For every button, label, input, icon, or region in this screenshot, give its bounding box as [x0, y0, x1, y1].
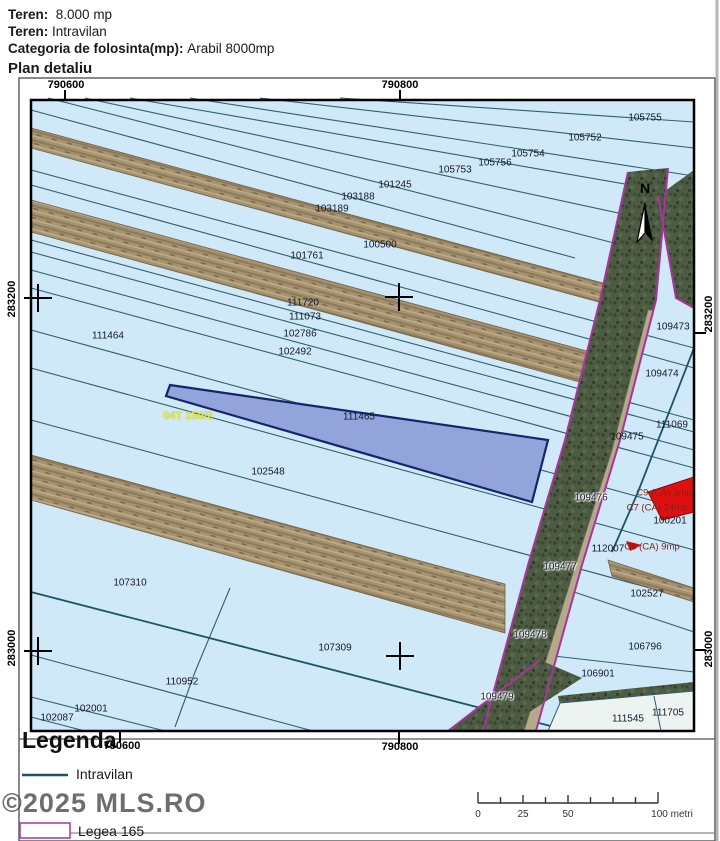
legea165-rect-symbol	[20, 823, 70, 838]
scale-label-25: 25	[517, 809, 528, 820]
scale-label-50: 50	[562, 809, 573, 820]
category-line: Categoria de folosinta(mp): Arabil 8000m…	[8, 40, 274, 57]
plan-map-canvas	[0, 0, 720, 841]
teren-area-line: Teren: 8.000 mp	[8, 6, 274, 23]
legend-item-intravilan: Intravilan	[76, 766, 133, 782]
page-header: Teren: 8.000 mp Teren: Intravilan Catego…	[8, 6, 274, 77]
map-area	[24, 90, 706, 744]
scale-label-0: 0	[475, 809, 481, 820]
legend-item-legea165: Legea 165	[78, 823, 144, 839]
cadastral-map-page: { "header": { "line1_label": "Teren:", "…	[0, 0, 720, 841]
scale-bar	[478, 792, 658, 803]
page-title: Plan detaliu	[8, 60, 274, 77]
teren-type-line: Teren: Intravilan	[8, 23, 274, 40]
legend-title: Legenda	[22, 727, 117, 754]
watermark: ©2025 MLS.RO	[2, 788, 206, 819]
scale-label-100: 100 metri	[651, 809, 693, 820]
